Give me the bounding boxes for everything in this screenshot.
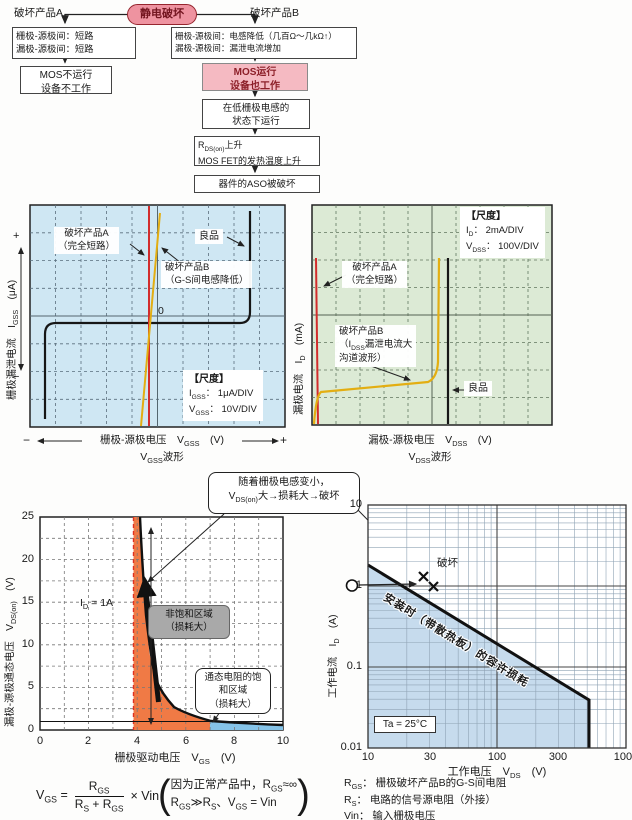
damage-x-mark-1 [419, 572, 428, 581]
diagram-canvas [0, 0, 632, 820]
flow-box-a2: MOS不运行 设备不工作 [20, 66, 112, 94]
flow-box-b1: 栅极-源极间：电感降低（几百Ω～几kΩ↑） 漏极-源极间：漏泄电流增加 [171, 27, 357, 59]
allowable-loss-label: 安装时（带散热板）的容许损耗 [381, 589, 533, 690]
legend-rs: RS： 电路的信号源电阻（外接） [344, 792, 496, 808]
flow-box-b2: MOS运行 设备也工作 [202, 63, 308, 91]
product-b-label: 破坏产品B [250, 5, 299, 20]
gate-label-product-b: 破坏产品B （G-S间电感降低） [161, 261, 252, 288]
gate-x-axis-label: 栅极-源极电压 VGSS (V) [84, 432, 240, 448]
mosfet-esd-damage-diagram: 破坏产品A 静电破坏 破坏产品B 栅极-源极间：短路 漏极-源极间：短路 栅极-… [0, 0, 632, 820]
gate-damaged-trace-b [141, 213, 160, 426]
formula-fraction: RGS RS + RGS [75, 779, 124, 814]
gate-x-plus-sign: + [280, 433, 287, 447]
drain-y-axis-label: 漏极电流 ID (mA) [290, 323, 307, 415]
aso-ytick: 10 [332, 498, 362, 510]
drain-label-good: 良品 [464, 381, 492, 396]
product-a-label: 破坏产品A [14, 5, 63, 20]
loss-increase-arrow [145, 582, 159, 702]
flow-box-b5: 器件的ASO被破坏 [194, 175, 320, 193]
formula-note: ( 因为正常产品中，RGS≈∞ RGS≫RS、VGS = Vin ) [158, 776, 310, 814]
drain-label-product-a: 破坏产品A （完全短路） [342, 261, 407, 288]
vgs-xtick: 0 [30, 735, 50, 747]
gate-waveform-caption: VGSS波形 [100, 449, 224, 465]
gate-x-minus-sign: − [23, 433, 30, 447]
aso-xtick: 100 [477, 751, 517, 763]
formula-times-vin: × Vin [131, 789, 160, 803]
drain-label-product-b: 破坏产品B （IDSS漏泄电流大 沟道波形） [335, 325, 416, 367]
flow-box-b4: RDS(on)上升 MOS FET的发热温度上升 [194, 136, 320, 166]
formula-lhs: VGS = [36, 788, 68, 805]
aso-ytick: 1 [332, 579, 362, 591]
drain-shorted-trace-a [316, 258, 318, 424]
drain-scale-box: 【尺度】 ID： 2mA/DIV VDSS： 100V/DIV [460, 207, 545, 258]
vgs-xtick: 6 [176, 735, 196, 747]
legend-vin: Vin： 输入栅极电压 [344, 808, 435, 820]
aso-log-grid [368, 505, 626, 748]
flow-box-b3: 在低栅极电感的 状态下运行 [202, 99, 310, 129]
aso-y-axis-label: 工作电流 ID (A) [324, 614, 341, 698]
aso-chart-plot [368, 505, 626, 748]
esd-damage-node: 静电破坏 [127, 4, 197, 25]
gate-scale-box: 【尺度】 IGSS： 1μA/DIV VGSS： 10V/DIV [183, 370, 263, 421]
aso-xtick: 1000 [606, 751, 632, 763]
vgs-y-axis-label: 漏极-源极通态电压 VDS(on) (V) [1, 577, 18, 727]
gate-label-product-a: 破坏产品A （完全短路） [54, 227, 119, 254]
flow-box-a1: 栅极-源极间：短路 漏极-源极间：短路 [12, 27, 136, 59]
damage-x-mark-2 [429, 582, 438, 591]
aso-xtick: 30 [410, 751, 450, 763]
drain-waveform-caption: VDSS波形 [368, 449, 492, 465]
saturation-region [210, 721, 283, 730]
gate-zero-label: 0 [158, 305, 164, 317]
vgs-ytick: 20 [12, 553, 34, 565]
vgs-x-axis-label: 栅极驱动电压 VGS (V) [90, 749, 260, 766]
vgs-formula: VGS = RGS RS + RGS × Vin [36, 779, 159, 814]
legend-rgs: RGS： 栅极破坏产品B的G-S间电阻 [344, 775, 506, 791]
saturation-region-label: 通态电阻的饱 和区域 （损耗大） [195, 668, 271, 714]
aso-xtick: 10 [348, 751, 388, 763]
id-condition-label: ID = 1A [80, 597, 113, 611]
vgs-xtick: 10 [273, 735, 293, 747]
ambient-temperature-label: Ta = 25°C [374, 716, 436, 733]
vgs-xtick: 8 [224, 735, 244, 747]
vgs-xtick: 2 [78, 735, 98, 747]
drain-x-axis-label: 漏极-源极电压 VDSS (V) [330, 432, 530, 448]
gate-label-good: 良品 [195, 229, 223, 244]
gate-y-minus-sign: − [13, 371, 19, 383]
vgs-ytick: 25 [12, 510, 34, 522]
nonsaturation-region-label: 非饱和区域 （损耗大） [148, 605, 230, 639]
aso-xtick: 300 [538, 751, 578, 763]
gate-y-plus-sign: + [13, 230, 19, 242]
vgs-xtick: 4 [127, 735, 147, 747]
damage-label: 破坏 [437, 555, 458, 570]
